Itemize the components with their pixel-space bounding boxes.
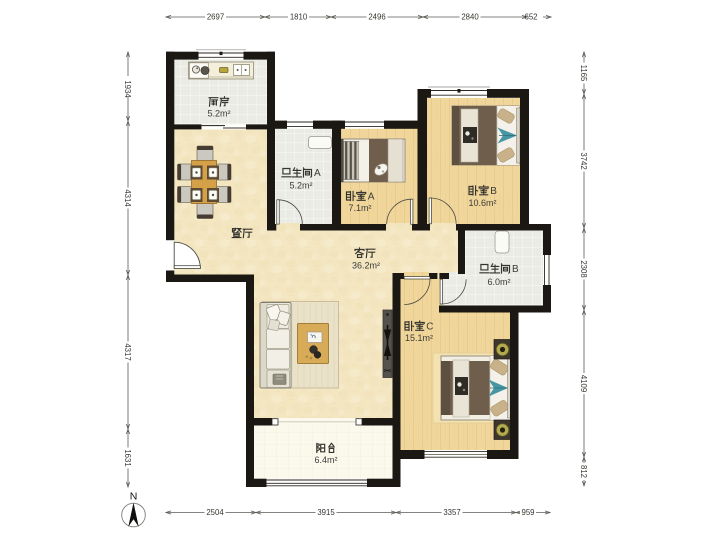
svg-text:B: B — [490, 186, 497, 197]
svg-text:2504: 2504 — [206, 508, 224, 517]
svg-text:1934: 1934 — [123, 80, 132, 98]
svg-text:5.2m²: 5.2m² — [207, 109, 230, 119]
svg-text:4314: 4314 — [123, 189, 132, 207]
svg-text:3357: 3357 — [443, 508, 460, 517]
svg-text:B: B — [512, 264, 519, 275]
svg-text:36.2m²: 36.2m² — [352, 261, 380, 271]
svg-text:2840: 2840 — [461, 13, 479, 22]
svg-text:4109: 4109 — [579, 375, 588, 392]
svg-text:1810: 1810 — [290, 13, 308, 22]
svg-text:A: A — [314, 168, 321, 179]
svg-text:1165: 1165 — [579, 65, 588, 82]
svg-text:2308: 2308 — [579, 260, 588, 277]
svg-text:A: A — [368, 192, 375, 203]
svg-text:3742: 3742 — [579, 152, 588, 169]
svg-text:15.1m²: 15.1m² — [405, 333, 433, 343]
svg-text:2697: 2697 — [207, 13, 224, 22]
svg-text:6.0m²: 6.0m² — [487, 277, 510, 287]
svg-text:652: 652 — [524, 13, 537, 22]
svg-text:812: 812 — [579, 465, 588, 478]
svg-text:3915: 3915 — [317, 508, 335, 517]
svg-text:7.1m²: 7.1m² — [348, 203, 371, 213]
svg-text:1631: 1631 — [123, 449, 132, 466]
svg-text:2496: 2496 — [368, 13, 385, 22]
svg-text:10.6m²: 10.6m² — [468, 198, 496, 208]
svg-text:5.2m²: 5.2m² — [289, 181, 312, 191]
svg-text:4317: 4317 — [123, 343, 132, 360]
svg-text:N: N — [130, 491, 138, 503]
svg-text:6.4m²: 6.4m² — [314, 455, 337, 465]
svg-text:959: 959 — [521, 508, 534, 517]
svg-text:C: C — [426, 322, 433, 333]
